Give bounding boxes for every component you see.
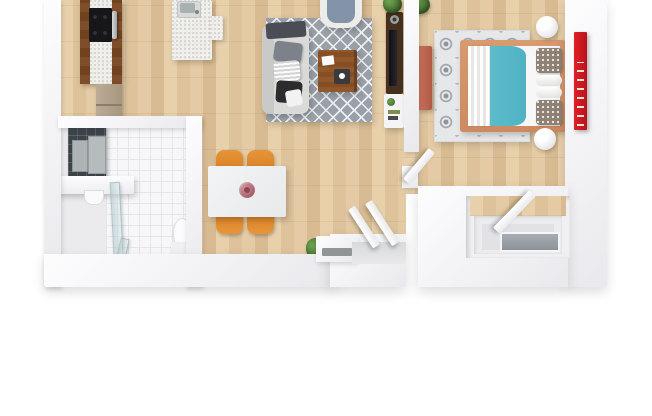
- red-shelf-books: [577, 62, 584, 126]
- sofa-blanket: [265, 21, 306, 40]
- divider-wall: [404, 0, 419, 152]
- bed-teal-duvet: [490, 46, 526, 126]
- bed-folded-duvet: [468, 46, 490, 126]
- island-wing: [210, 16, 223, 40]
- oven-handle: [112, 11, 117, 39]
- cabinet-books: [388, 110, 400, 114]
- entry-bench-slot: [322, 248, 352, 256]
- cabinet-books-2: [388, 116, 398, 120]
- bed-pillow-pattern-2: [536, 100, 562, 125]
- tv-screen: [389, 30, 397, 86]
- alcove-window: [500, 232, 560, 252]
- mirror-cabinet-1: [72, 140, 88, 172]
- bed-pillow-pattern-1: [536, 48, 562, 73]
- sofa-pillow-striped: [273, 60, 301, 82]
- left-outer-wall: [44, 0, 61, 287]
- refrigerator-divider: [96, 104, 122, 106]
- bedside-lamp-bottom: [534, 128, 556, 150]
- sink-faucet: [195, 10, 199, 14]
- coffee-cup: [339, 73, 345, 79]
- sofa-throw-white: [285, 89, 304, 108]
- cabinet-plant: [387, 98, 395, 106]
- bedside-lamp-top: [536, 16, 558, 38]
- mirror-cabinet-2: [88, 136, 106, 174]
- speaker-knob: [390, 15, 399, 24]
- bottom-outer-wall: [44, 254, 336, 287]
- armchair-cushion: [327, 0, 355, 23]
- entry-threshold: [352, 242, 406, 264]
- bed-pillow-roll-2: [536, 87, 562, 98]
- sink-basin: [180, 3, 195, 13]
- flower-detail: [244, 187, 250, 193]
- bathroom-top-wall: [58, 116, 202, 128]
- bedroom-bench: [417, 46, 432, 110]
- cooktop: [89, 8, 112, 42]
- bed-pillow-roll-1: [536, 75, 562, 86]
- floor-plan-render: [0, 0, 652, 416]
- vanity-basin: [84, 190, 104, 205]
- coffee-table-paper: [321, 55, 334, 65]
